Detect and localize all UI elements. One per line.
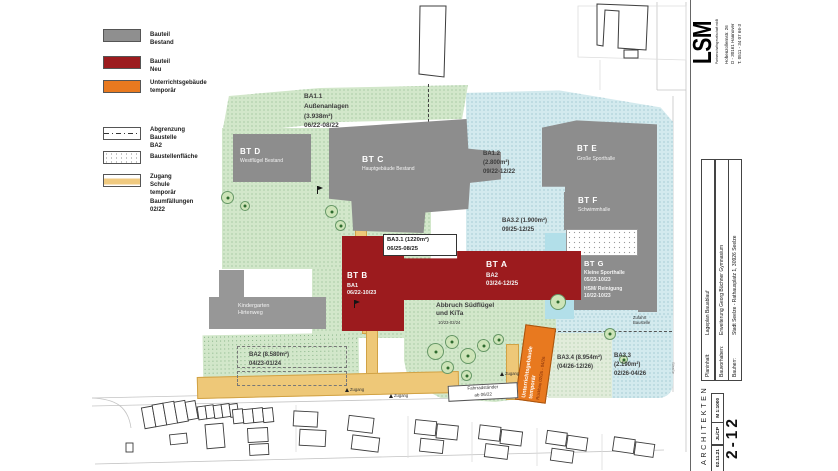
legend-label: Baustellenfläche: [150, 154, 198, 162]
neighborhood-buildings: [126, 398, 655, 465]
zugang-marker-icon: [345, 388, 349, 392]
firm-name: ARCHITEKTEN: [699, 386, 708, 465]
abbruch-period-label: 10/23-02/24: [438, 320, 460, 325]
tree-icon: [460, 348, 476, 364]
plan-info-table: Planinhalt: Lageplan Bauablauf Bauvorhab…: [702, 159, 742, 381]
tree-icon: [445, 335, 459, 349]
site-plan-canvas: Unterrichtsgebäude temporär Rückbau 02/2…: [0, 0, 838, 471]
tree-icon: [427, 343, 444, 360]
tree-icon: [240, 201, 250, 211]
firm-address: Hohenzollernstr. 26 D - 30161 Hannover T…: [724, 3, 743, 67]
legend-label: Zugang Schule temporär: [150, 174, 176, 197]
btG-sublabel: Kleine Sporthalle 05/23-10/23: [584, 270, 625, 284]
zufahrt-label: Zufahrt Baustelle: [633, 315, 650, 326]
building-east-wing: [638, 192, 657, 312]
tree-icon: [441, 361, 454, 374]
legend-swatch-abgrenzung: [103, 127, 141, 140]
info-key: Bauherr:: [732, 335, 738, 380]
ba34-label: BA3.4 (8.954m²) (04/26-12/26): [557, 354, 602, 372]
btF-label: BT F: [578, 197, 598, 205]
zugang-marker-icon: [500, 372, 504, 376]
info-value: Lageplan Bauablauf: [705, 160, 711, 335]
title-block: ARCHITEKTEN 02.11.21 JL/CP M 1:1000 2-12…: [690, 0, 750, 471]
legend-label: Baumfällungen 02/22: [150, 199, 193, 215]
ba2-label: BA2 (8.580m²) 04/23-01/24: [249, 351, 289, 369]
btG-sublabel-2: HSM/ Reinigung 10/22-10/23: [584, 286, 622, 300]
info-key: Bauvorhaben:: [719, 335, 725, 380]
btE-label: BT E: [577, 145, 597, 153]
boundary-dashdot-top: [428, 84, 429, 122]
zugang-label: Zugang: [500, 371, 519, 376]
tree-icon: [493, 334, 504, 345]
info-row: Bauvorhaben: Erweiterung Georg Büchner G…: [715, 159, 729, 381]
zugang-label: Zugang: [389, 393, 408, 398]
plan-date: 02.11.21: [711, 445, 724, 471]
legend-label: Unterrichtsgebäude temporär: [150, 80, 207, 96]
tree-icon: [550, 294, 566, 310]
btF-sublabel: Schwimmhalle: [578, 207, 610, 214]
zugang-label: Zugang: [345, 387, 364, 392]
building-kindergarten-arm: [219, 270, 244, 300]
ba32-label: BA3.2 (1.900m²) 09/25-12/25: [502, 217, 547, 235]
btC-label: BT C: [362, 155, 384, 164]
tree-icon: [604, 328, 616, 340]
zugang-marker-icon: [389, 394, 393, 398]
plan-initials: JL/CP: [711, 422, 724, 445]
outline-buildings: [419, 4, 648, 77]
abbruch-label: Abbruch Südflügel und KiTa: [436, 302, 494, 319]
ba2-dashed-box-2: [237, 371, 347, 386]
btB-sublabel: BA1 06/22-10/23: [347, 283, 376, 298]
flag-marker-icon: [354, 300, 355, 308]
flag-marker-icon: [317, 186, 318, 194]
legend-label: Bauteil Neu: [150, 59, 170, 75]
btC-sublabel: Hauptgebäude Bestand: [362, 166, 415, 173]
info-value: Stadt Seelze - Rathausplatz 1, 30926 See…: [732, 160, 738, 335]
btA-label: BT A: [486, 260, 508, 269]
tree-icon: [335, 220, 346, 231]
plan-meta-table: 02.11.21 JL/CP M 1:1000: [711, 393, 724, 471]
tree-icon: [221, 191, 234, 204]
legend-swatch-baustellenflaeche: [103, 151, 141, 164]
legend-label: Bauteil Bestand: [150, 32, 174, 48]
info-row: Planinhalt: Lageplan Bauablauf: [701, 159, 715, 381]
legend-label: Abgrenzung Baustelle BA2: [150, 127, 185, 150]
ba11-label: BA1.1 Außenanlagen (3.938m²) 06/22-08/22: [304, 92, 349, 131]
firm-logo-block: LSM Partnerschaftsgesellschaft mbB Hohen…: [691, 3, 743, 67]
sheet-number: 2-12: [724, 416, 742, 459]
street-name-label: Straße: [671, 362, 676, 374]
tree-icon: [477, 339, 490, 352]
tree-icon: [461, 370, 472, 381]
plan-scale: M 1:1000: [711, 393, 724, 423]
ba33-label: BA3.3 (2.190m²) 02/26-04/26: [614, 352, 646, 379]
ba12-label: BA1.2 (2.800m²) 09/22-12/22: [483, 150, 515, 177]
tree-icon: [325, 205, 338, 218]
info-value: Erweiterung Georg Büchner Gymnasium: [719, 160, 725, 335]
btD-sublabel: Westflügel Bestand: [240, 158, 283, 165]
btA-sublabel: BA2 03/24-12/25: [486, 272, 518, 288]
lsm-logo: LSM: [691, 3, 716, 67]
btE-sublabel: Große Sporthalle: [577, 156, 615, 163]
btG-label: BT G: [584, 260, 604, 268]
btD-label: BT D: [240, 148, 261, 156]
info-row: Bauherr: Stadt Seelze - Rathausplatz 1, …: [728, 159, 742, 381]
info-key: Planinhalt:: [705, 335, 711, 380]
legend-swatch-temporaer: [103, 80, 141, 93]
legend-swatch-bestand: [103, 29, 141, 42]
ba31-label-box: BA3.1 (1220m²) 06/25-08/25: [383, 234, 457, 256]
legend-swatch-zugang: [103, 174, 141, 187]
btB-label: BT B: [347, 272, 368, 280]
legend-swatch-neu: [103, 56, 141, 69]
kindergarten-label: Kindergarten Hirtenweg: [238, 303, 270, 318]
